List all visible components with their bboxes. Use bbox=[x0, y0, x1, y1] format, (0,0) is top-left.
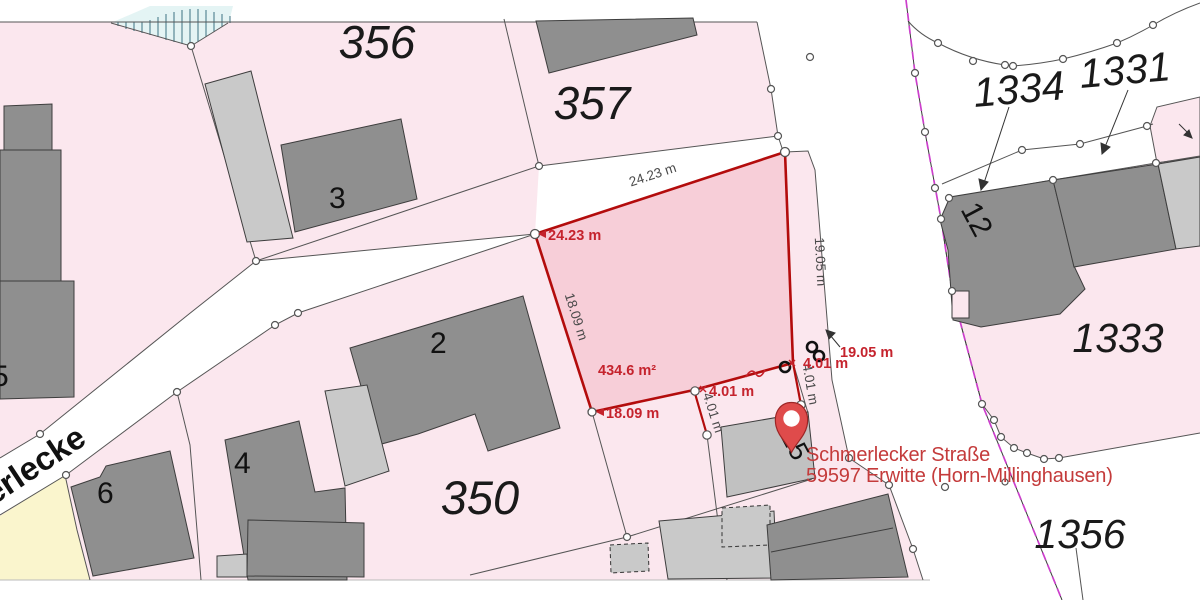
svg-text:1356: 1356 bbox=[1034, 511, 1125, 557]
svg-text:1331: 1331 bbox=[1077, 43, 1172, 97]
svg-text:18.09 m: 18.09 m bbox=[606, 406, 659, 422]
svg-text:357: 357 bbox=[554, 77, 632, 129]
svg-text:24.23 m: 24.23 m bbox=[548, 228, 601, 244]
svg-text:434.6 m²: 434.6 m² bbox=[598, 363, 656, 379]
svg-text:19.05 m: 19.05 m bbox=[812, 237, 830, 286]
svg-text:4: 4 bbox=[234, 447, 251, 480]
svg-text:5: 5 bbox=[0, 360, 9, 393]
svg-text:4.01 m: 4.01 m bbox=[709, 384, 754, 400]
svg-text:3: 3 bbox=[329, 182, 346, 215]
svg-text:356: 356 bbox=[339, 16, 416, 68]
svg-text:1333: 1333 bbox=[1072, 315, 1163, 361]
svg-text:59597 Erwitte (Horn-Millinghau: 59597 Erwitte (Horn-Millinghausen) bbox=[806, 465, 1113, 487]
svg-text:19.05 m: 19.05 m bbox=[840, 345, 893, 361]
svg-text:6: 6 bbox=[97, 477, 114, 510]
svg-text:1334: 1334 bbox=[971, 62, 1066, 116]
svg-text:Schmerlecker Straße: Schmerlecker Straße bbox=[806, 444, 990, 466]
svg-text:2: 2 bbox=[430, 327, 447, 360]
svg-text:350: 350 bbox=[441, 471, 519, 524]
